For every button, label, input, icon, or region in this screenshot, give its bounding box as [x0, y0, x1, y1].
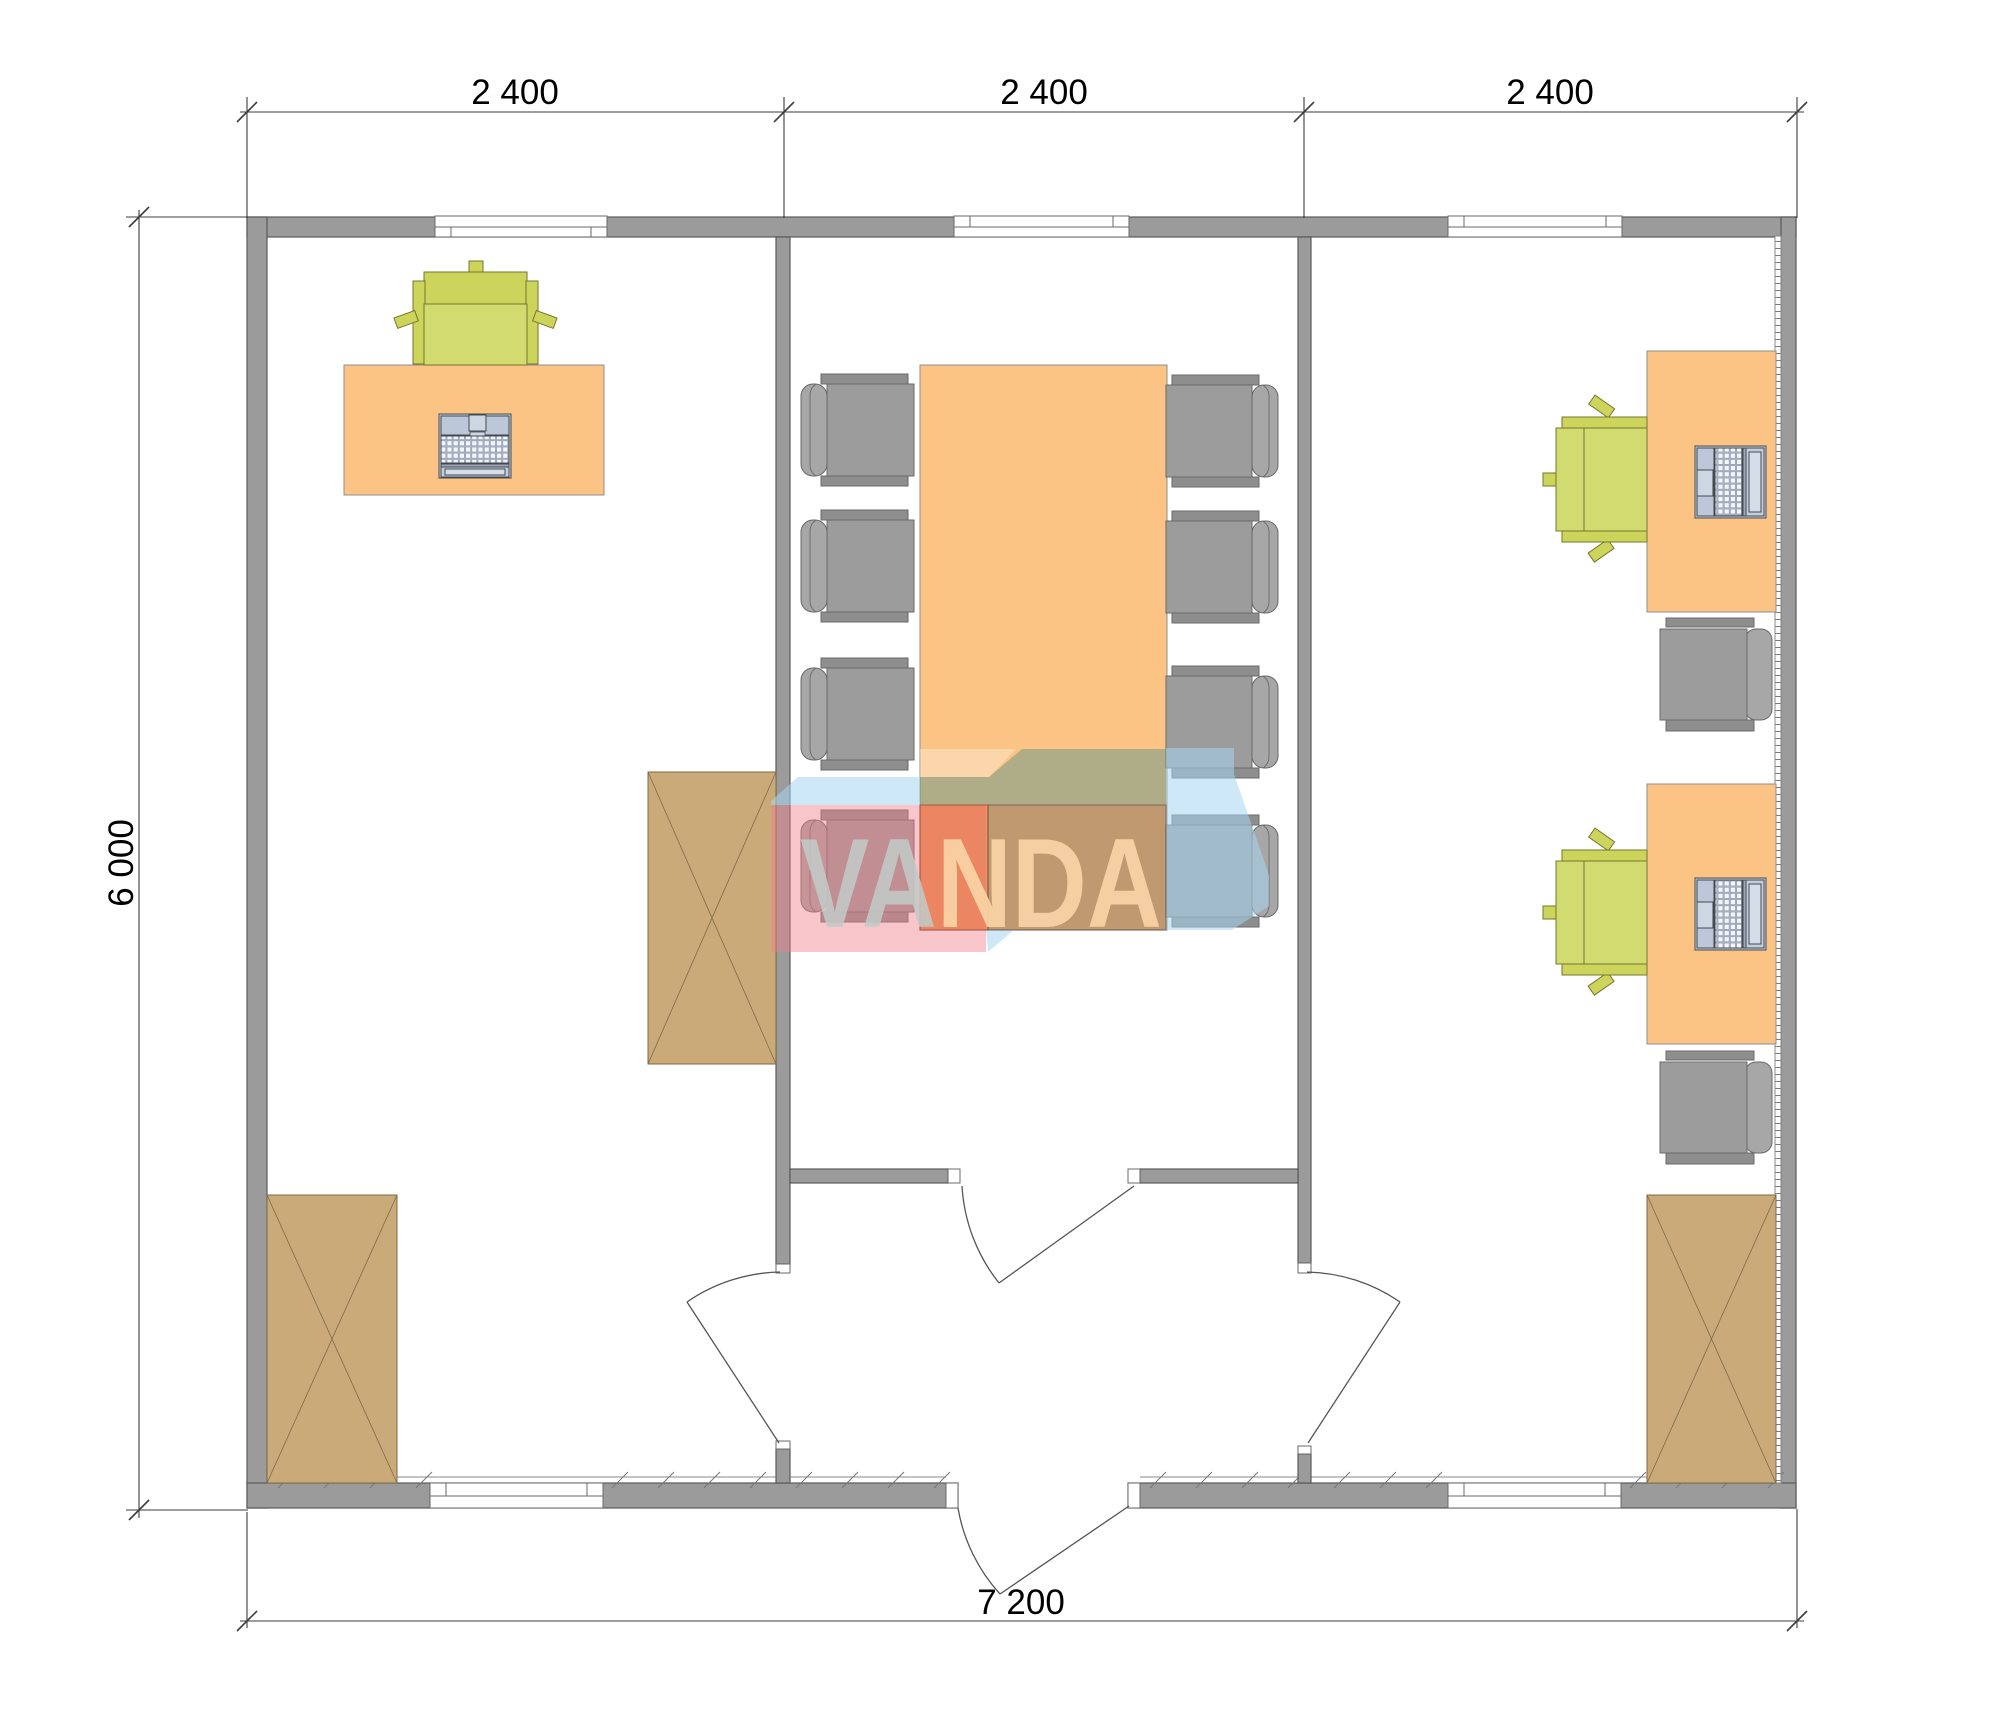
svg-text:7 200: 7 200 [977, 1583, 1065, 1622]
svg-text:2 400: 2 400 [1506, 73, 1594, 112]
svg-text:VANDA: VANDA [800, 812, 1162, 954]
svg-text:2 400: 2 400 [1000, 73, 1088, 112]
svg-text:2 400: 2 400 [471, 73, 559, 112]
svg-text:6 000: 6 000 [102, 819, 141, 907]
